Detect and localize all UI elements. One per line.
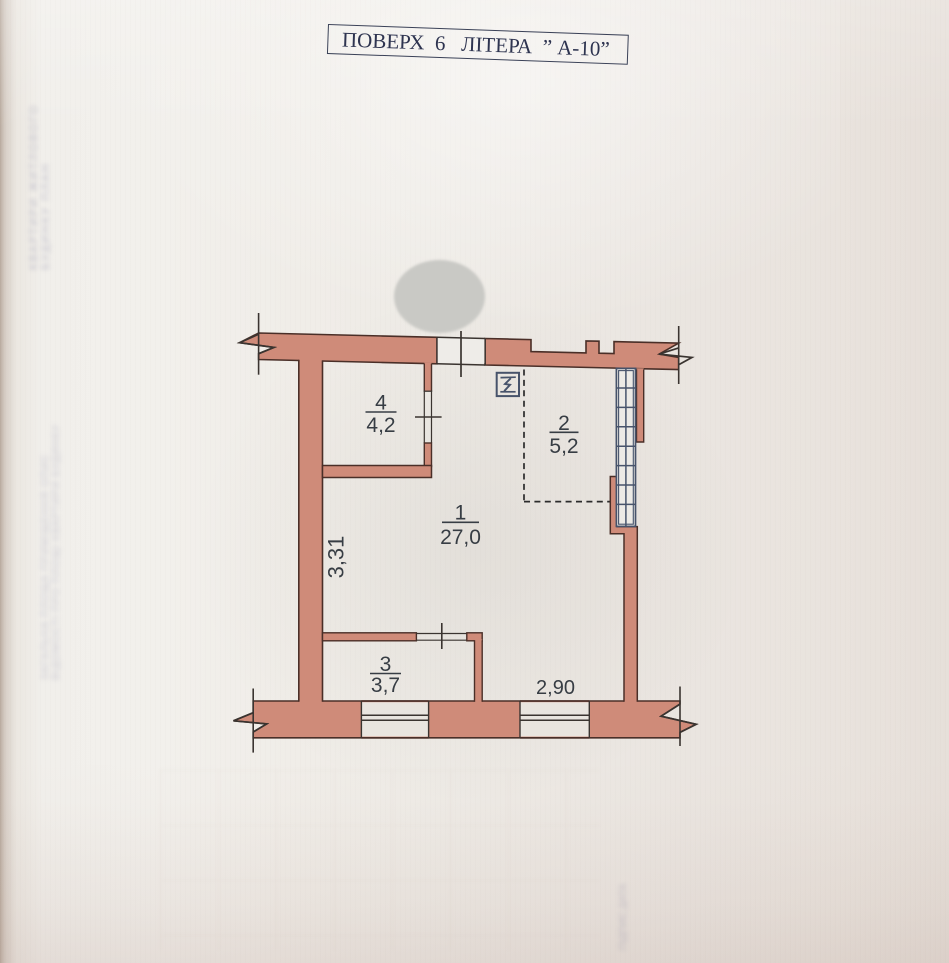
svg-text:4: 4	[375, 392, 387, 415]
svg-text:1: 1	[455, 502, 467, 525]
svg-text:3,7: 3,7	[371, 674, 400, 697]
svg-text:27,0: 27,0	[440, 526, 481, 549]
svg-text:2,90: 2,90	[536, 677, 575, 699]
svg-text:3,31: 3,31	[324, 536, 349, 579]
svg-text:4,2: 4,2	[366, 414, 395, 437]
svg-text:3: 3	[380, 653, 392, 676]
svg-text:5,2: 5,2	[549, 435, 578, 458]
